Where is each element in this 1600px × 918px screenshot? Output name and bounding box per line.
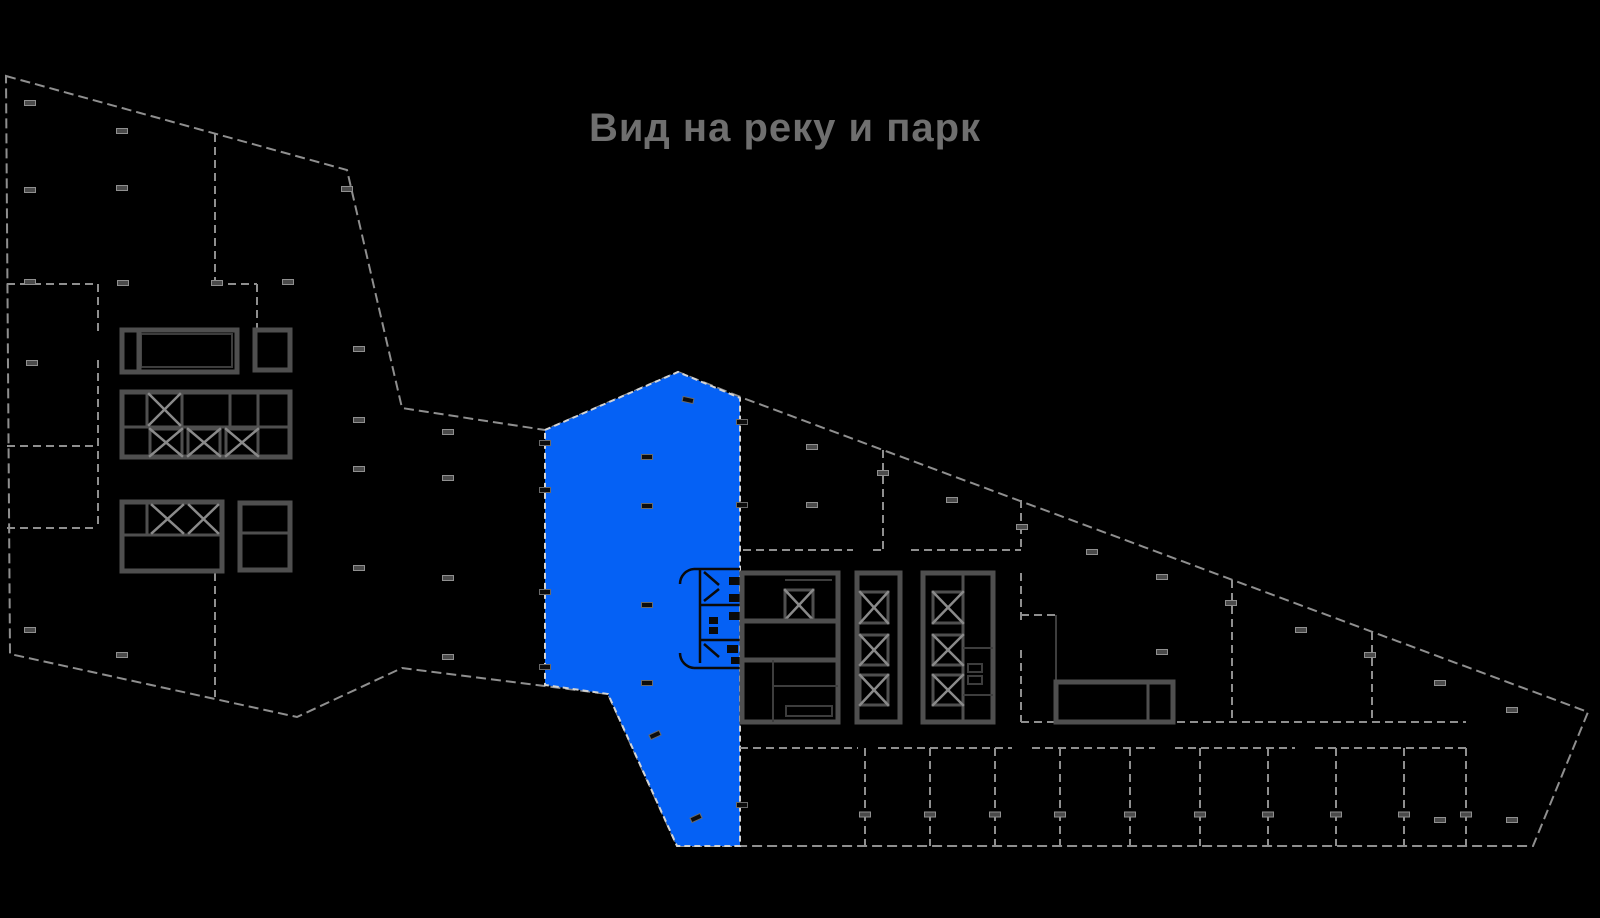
column-marker	[947, 498, 958, 503]
column-marker	[642, 455, 653, 460]
column-marker	[1296, 628, 1307, 633]
column-marker	[737, 420, 748, 425]
column-marker	[540, 441, 551, 446]
column-marker	[443, 430, 454, 435]
column-marker	[117, 186, 128, 191]
column-marker	[283, 280, 294, 285]
column-marker	[443, 655, 454, 660]
wall-tick	[1399, 812, 1410, 817]
column-marker	[1017, 525, 1028, 530]
column-marker	[354, 347, 365, 352]
column-marker	[642, 504, 653, 509]
column-marker	[540, 488, 551, 493]
wall-tick	[1461, 812, 1472, 817]
wall-tick	[990, 812, 1001, 817]
central-cores	[742, 573, 1173, 722]
floor-plan-canvas: Вид на реку и парк	[0, 0, 1600, 918]
column-marker	[25, 101, 36, 106]
column-marker	[807, 503, 818, 508]
stair-x	[150, 429, 258, 456]
column-marker	[354, 467, 365, 472]
wall-tick	[1055, 812, 1066, 817]
column-marker	[540, 665, 551, 670]
wall-tick	[1195, 812, 1206, 817]
wall-tick	[925, 812, 936, 817]
highlighted-unit[interactable]	[545, 372, 740, 846]
column-marker	[118, 281, 129, 286]
column-marker	[540, 590, 551, 595]
column-marker	[1226, 601, 1237, 606]
column-marker	[1087, 550, 1098, 555]
column-marker	[1435, 818, 1446, 823]
column-marker	[1507, 708, 1518, 713]
column-marker	[807, 445, 818, 450]
column-marker	[117, 653, 128, 658]
column-marker	[342, 187, 353, 192]
left-core	[122, 330, 290, 571]
bottom-room-dividers	[860, 748, 1472, 846]
column-marker	[1365, 653, 1376, 658]
column-marker	[25, 188, 36, 193]
column-marker	[878, 471, 889, 476]
exterior-walls	[6, 76, 1588, 846]
column-marker	[443, 576, 454, 581]
wall-tick	[1125, 812, 1136, 817]
wall-tick	[1331, 812, 1342, 817]
wall-tick	[1263, 812, 1274, 817]
column-marker	[737, 803, 748, 808]
column-marker	[737, 503, 748, 508]
column-marker	[642, 681, 653, 686]
column-marker	[642, 603, 653, 608]
column-marker	[1435, 681, 1446, 686]
column-markers	[25, 101, 1518, 823]
column-marker	[354, 418, 365, 423]
column-marker	[27, 361, 38, 366]
stair-x	[860, 592, 888, 705]
column-marker	[117, 129, 128, 134]
column-marker	[1157, 575, 1168, 580]
column-marker	[212, 281, 223, 286]
column-marker	[25, 280, 36, 285]
view-caption: Вид на реку и парк	[589, 106, 981, 150]
stair-x	[149, 394, 180, 425]
column-marker	[1157, 650, 1168, 655]
column-marker	[25, 628, 36, 633]
column-marker	[1507, 818, 1518, 823]
column-marker	[354, 566, 365, 571]
column-marker	[443, 476, 454, 481]
stair-x	[933, 592, 963, 705]
wall-tick	[860, 812, 871, 817]
stair-x	[152, 505, 218, 533]
highlighted-unit-area[interactable]	[545, 372, 740, 846]
